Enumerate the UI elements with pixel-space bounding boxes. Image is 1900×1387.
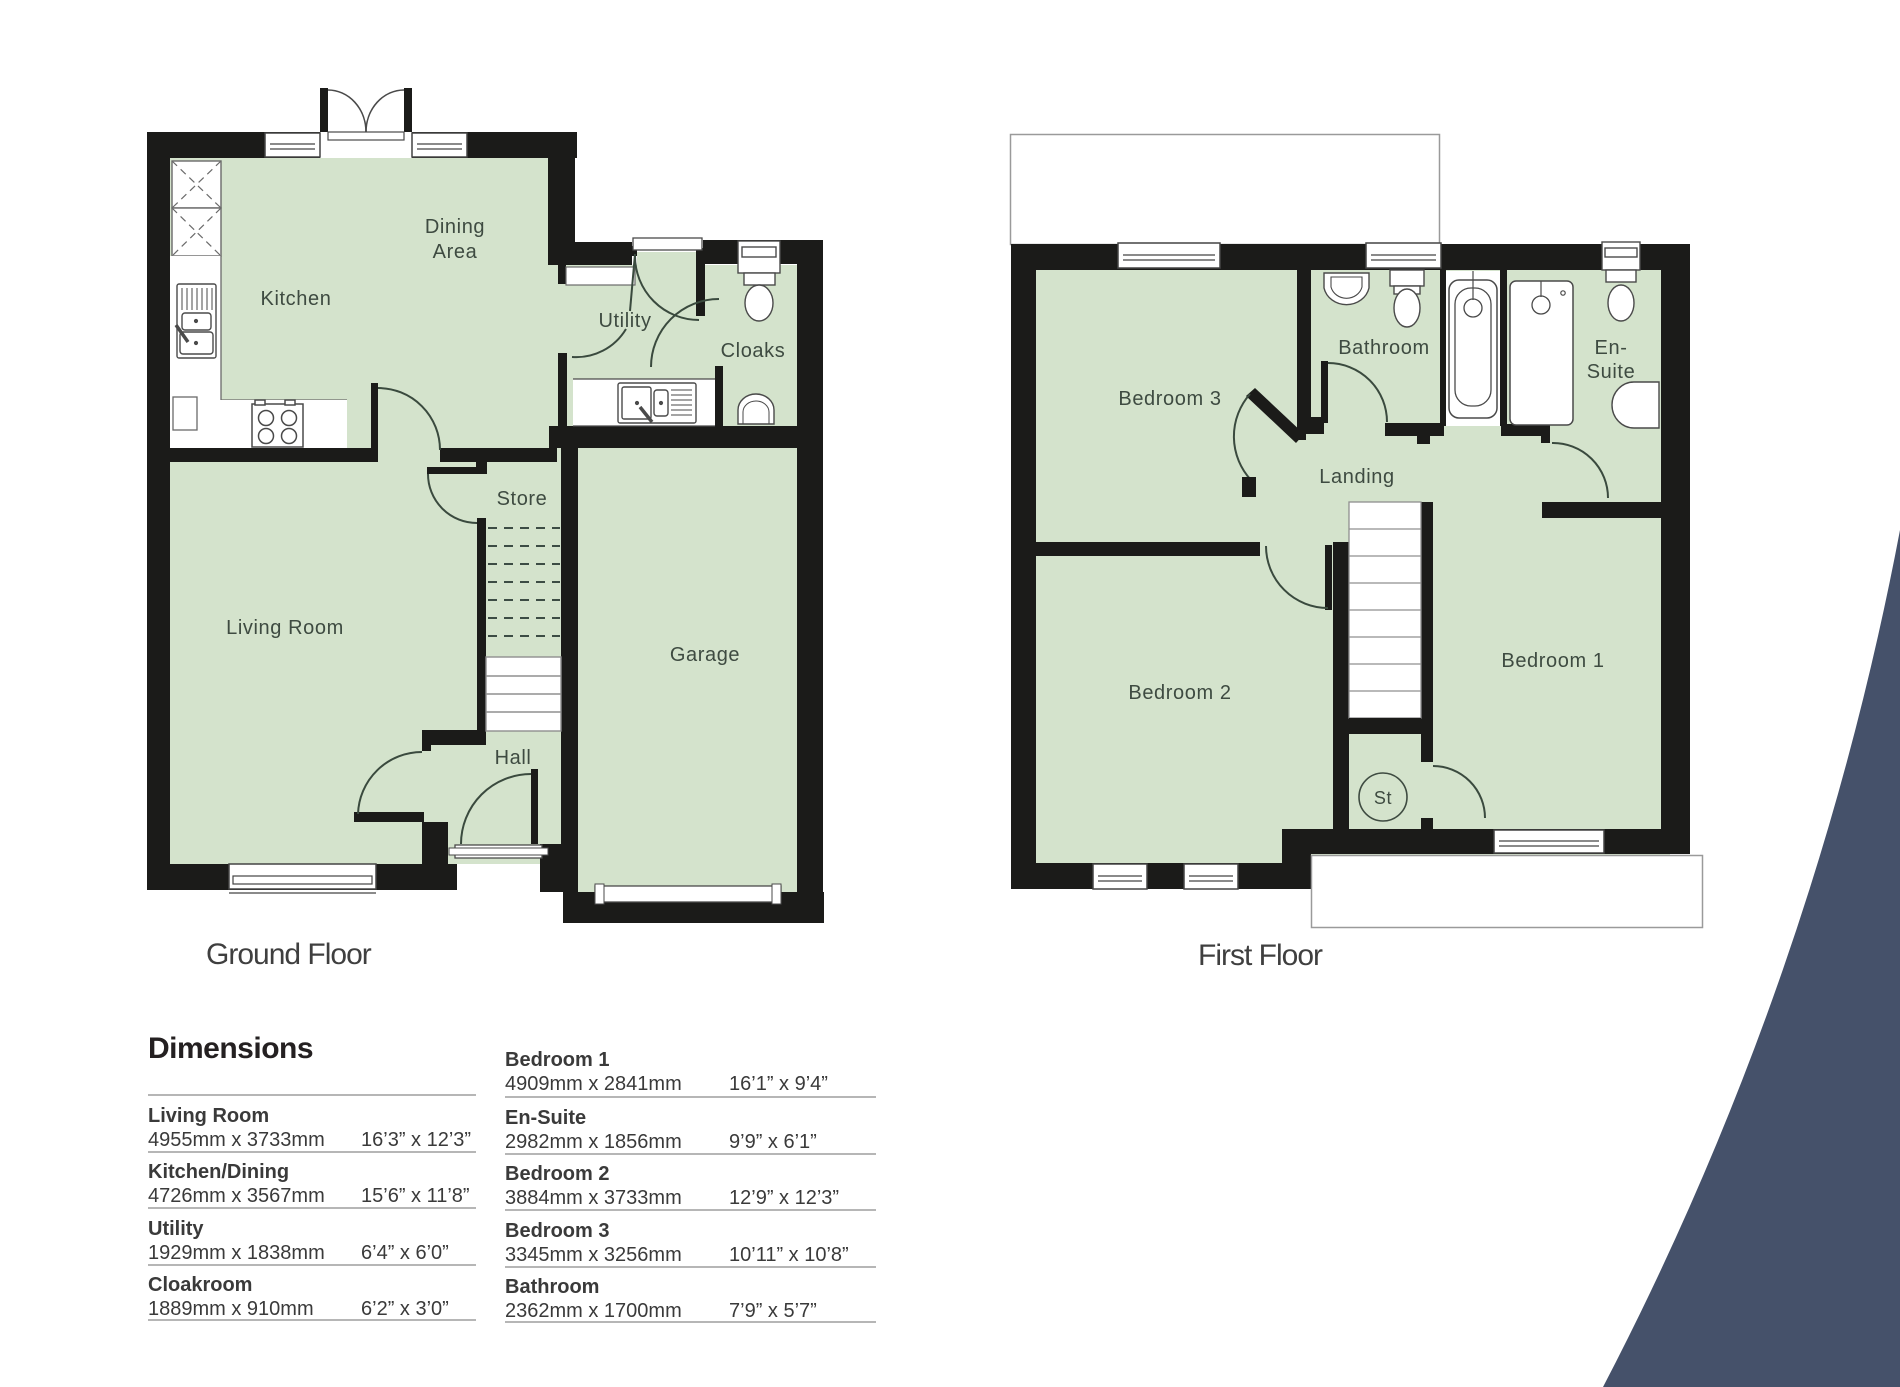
svg-text:4955mm x 3733mm: 4955mm x 3733mm: [148, 1129, 325, 1151]
svg-text:Dining: Dining: [425, 216, 485, 238]
svg-text:Area: Area: [433, 241, 478, 263]
svg-text:Bedroom 3: Bedroom 3: [505, 1220, 609, 1242]
svg-text:Suite: Suite: [1587, 361, 1636, 383]
svg-text:12’9” x 12’3”: 12’9” x 12’3”: [729, 1187, 839, 1209]
svg-text:Kitchen/Dining: Kitchen/Dining: [148, 1161, 289, 1183]
svg-text:Dimensions: Dimensions: [148, 1032, 313, 1065]
svg-text:St: St: [1374, 788, 1392, 808]
svg-text:9’9” x 6’1”: 9’9” x 6’1”: [729, 1131, 817, 1153]
svg-text:Landing: Landing: [1319, 466, 1394, 488]
svg-text:Bedroom 2: Bedroom 2: [505, 1163, 609, 1185]
svg-text:Cloaks: Cloaks: [721, 340, 786, 362]
svg-text:2982mm x 1856mm: 2982mm x 1856mm: [505, 1131, 682, 1153]
svg-text:Garage: Garage: [670, 644, 740, 666]
svg-text:10’11” x 10’8”: 10’11” x 10’8”: [729, 1244, 849, 1266]
svg-text:Bedroom 2: Bedroom 2: [1128, 682, 1231, 704]
svg-text:1929mm x 1838mm: 1929mm x 1838mm: [148, 1242, 325, 1264]
svg-text:Bathroom: Bathroom: [505, 1276, 599, 1298]
svg-text:Store: Store: [497, 488, 548, 510]
svg-text:7’9” x 5’7”: 7’9” x 5’7”: [729, 1300, 817, 1322]
svg-text:Ground Floor: Ground Floor: [206, 938, 372, 971]
svg-text:Utility: Utility: [148, 1218, 204, 1240]
svg-text:En-: En-: [1595, 337, 1628, 359]
svg-text:En-Suite: En-Suite: [505, 1107, 586, 1129]
svg-text:16’3” x 12’3”: 16’3” x 12’3”: [361, 1129, 471, 1151]
svg-text:Bedroom 3: Bedroom 3: [1118, 388, 1221, 410]
svg-text:4726mm x 3567mm: 4726mm x 3567mm: [148, 1185, 325, 1207]
svg-text:1889mm x 910mm: 1889mm x 910mm: [148, 1298, 314, 1320]
svg-text:Bedroom 1: Bedroom 1: [505, 1049, 609, 1071]
svg-text:16’1” x 9’4”: 16’1” x 9’4”: [729, 1073, 828, 1095]
svg-text:Utility: Utility: [598, 310, 651, 332]
svg-text:Living Room: Living Room: [226, 617, 344, 639]
svg-text:Living Room: Living Room: [148, 1105, 269, 1127]
svg-text:6’2” x 3’0”: 6’2” x 3’0”: [361, 1298, 449, 1320]
svg-text:2362mm x 1700mm: 2362mm x 1700mm: [505, 1300, 682, 1322]
svg-text:Cloakroom: Cloakroom: [148, 1274, 252, 1296]
svg-text:Hall: Hall: [495, 747, 532, 769]
svg-text:Bathroom: Bathroom: [1338, 337, 1430, 359]
svg-text:Kitchen: Kitchen: [261, 288, 332, 310]
svg-text:15’6” x 11’8”: 15’6” x 11’8”: [361, 1185, 470, 1207]
svg-text:Bedroom 1: Bedroom 1: [1501, 650, 1604, 672]
svg-text:6’4” x 6’0”: 6’4” x 6’0”: [361, 1242, 449, 1264]
svg-text:3884mm x 3733mm: 3884mm x 3733mm: [505, 1187, 682, 1209]
svg-text:3345mm x 3256mm: 3345mm x 3256mm: [505, 1244, 682, 1266]
svg-text:4909mm x 2841mm: 4909mm x 2841mm: [505, 1073, 682, 1095]
svg-text:First Floor: First Floor: [1198, 939, 1323, 972]
